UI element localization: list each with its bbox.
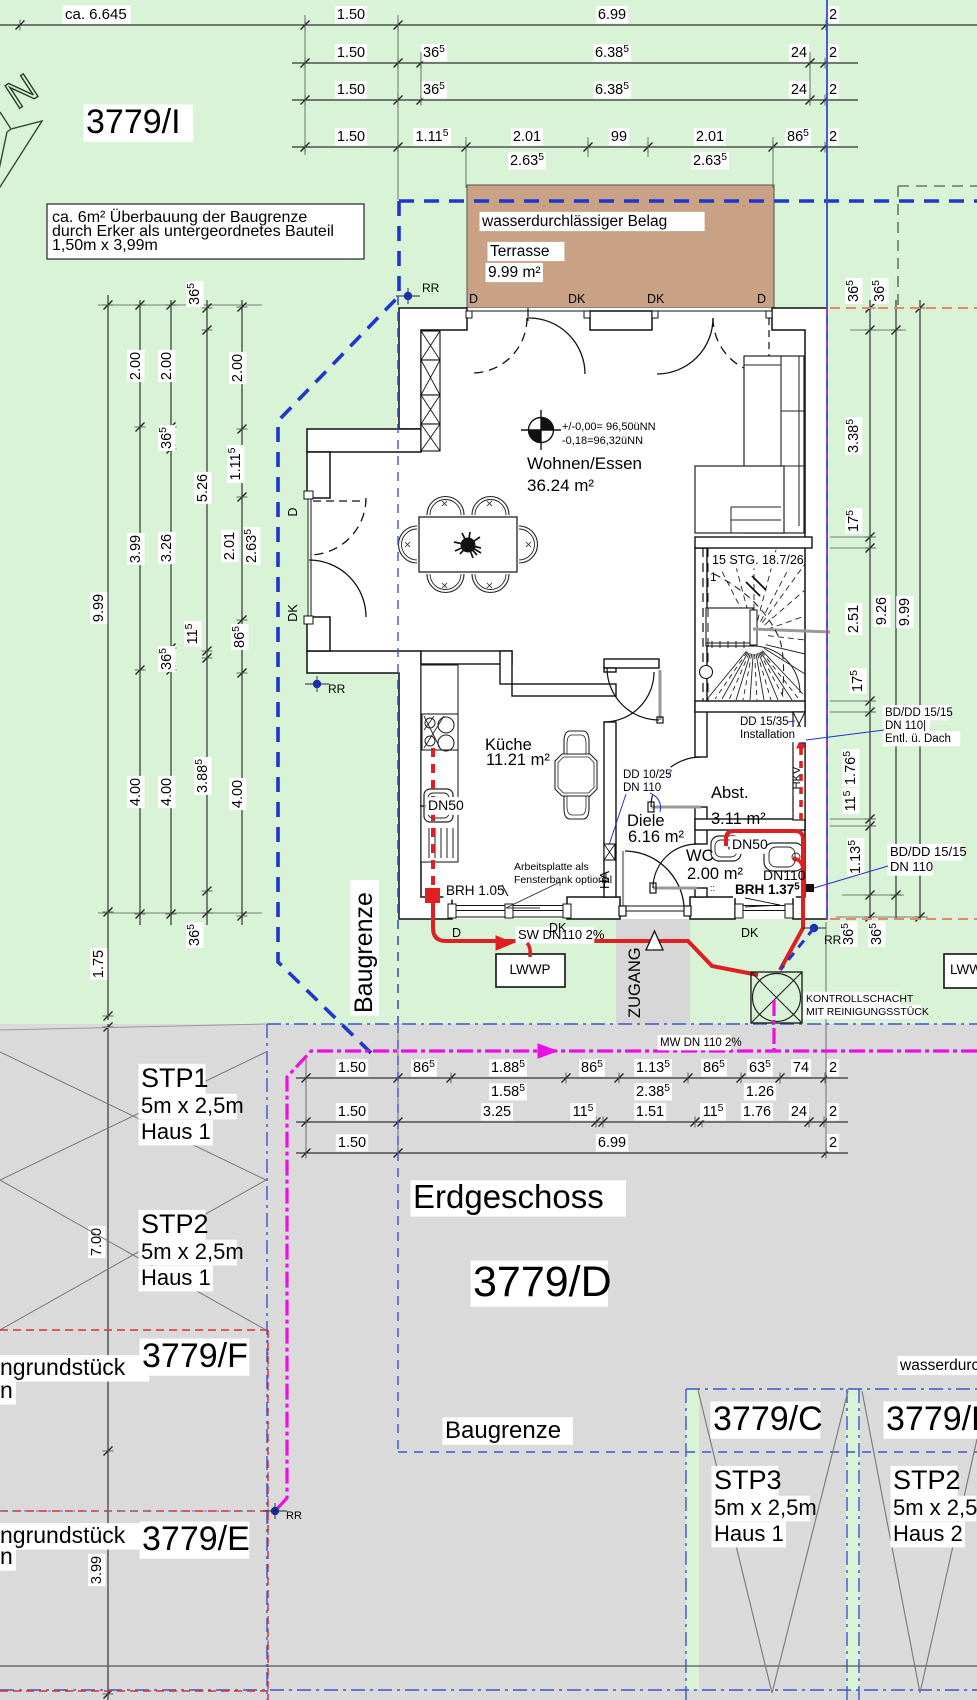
svg-text:Erdgeschoss: Erdgeschoss — [413, 1178, 604, 1215]
svg-text:1.50: 1.50 — [337, 7, 365, 23]
svg-text:5m x 2,5m: 5m x 2,5m — [141, 1093, 244, 1118]
svg-text:24: 24 — [791, 1104, 807, 1120]
svg-text:Baugrenze: Baugrenze — [445, 1417, 561, 1444]
svg-text:Baugrenze: Baugrenze — [350, 892, 378, 1013]
svg-text:DK: DK — [549, 921, 567, 935]
svg-text:1.50: 1.50 — [337, 129, 365, 145]
svg-text:3.25: 3.25 — [483, 1104, 511, 1120]
svg-text:Haus 1: Haus 1 — [714, 1521, 784, 1546]
svg-text:2: 2 — [829, 45, 837, 61]
svg-text:2: 2 — [829, 1104, 837, 1120]
svg-text:DN50: DN50 — [732, 836, 768, 852]
svg-text:-0,18=96,32üNN: -0,18=96,32üNN — [562, 435, 643, 447]
svg-text:WC: WC — [686, 847, 714, 865]
svg-text:1.50: 1.50 — [337, 45, 365, 61]
svg-text:5.26: 5.26 — [195, 474, 211, 502]
svg-text:Entl. ü. Dach: Entl. ü. Dach — [885, 733, 951, 745]
svg-text:RR: RR — [328, 682, 346, 696]
svg-text:::: :: — [710, 883, 715, 893]
svg-text:+/-0,00= 96,50üNN: +/-0,00= 96,50üNN — [562, 421, 656, 433]
svg-text:2.51: 2.51 — [846, 605, 862, 633]
svg-text:Haus 1: Haus 1 — [141, 1119, 211, 1144]
svg-text:ngrundstück: ngrundstück — [0, 1354, 126, 1380]
svg-text:9.99 m²: 9.99 m² — [488, 264, 541, 281]
svg-text:1,50m x 3,99m: 1,50m x 3,99m — [52, 237, 158, 254]
svg-text:LWWP: LWWP — [950, 962, 977, 977]
svg-text:RR: RR — [422, 281, 440, 295]
svg-text:7.00: 7.00 — [89, 1228, 105, 1256]
svg-text:6.99: 6.99 — [598, 7, 626, 23]
svg-text:4.00: 4.00 — [159, 778, 175, 806]
svg-text:DD 10/25: DD 10/25 — [623, 769, 672, 781]
svg-text:9.26: 9.26 — [874, 597, 890, 625]
svg-text:1.75: 1.75 — [91, 950, 107, 978]
svg-text:Haus 2: Haus 2 — [893, 1521, 963, 1546]
svg-text:ngrundstück: ngrundstück — [0, 1522, 126, 1548]
svg-text:2.00: 2.00 — [128, 352, 144, 380]
svg-text:Installation: Installation — [740, 729, 795, 741]
svg-text:9.99: 9.99 — [91, 594, 107, 622]
svg-text:BD/DD 15/15: BD/DD 15/15 — [885, 707, 953, 719]
svg-text:24: 24 — [791, 45, 807, 61]
svg-text:BRH 1.05: BRH 1.05 — [446, 883, 505, 898]
svg-text:STP1: STP1 — [141, 1063, 209, 1093]
svg-text:BD/DD 15/15: BD/DD 15/15 — [890, 844, 967, 859]
svg-text:D: D — [757, 292, 766, 306]
svg-text:D: D — [469, 292, 478, 306]
svg-text:1.50: 1.50 — [338, 1135, 366, 1151]
svg-text:4.00: 4.00 — [230, 780, 246, 808]
svg-text:DD 15/35: DD 15/35 — [740, 716, 789, 728]
svg-text:Arbeitsplatte als: Arbeitsplatte als — [514, 861, 589, 873]
svg-text:RR: RR — [824, 933, 842, 947]
svg-text:DN50: DN50 — [428, 797, 464, 813]
svg-text:3779/F: 3779/F — [142, 1337, 248, 1375]
svg-text:ca. 6.645: ca. 6.645 — [65, 6, 127, 23]
svg-text:1.50: 1.50 — [338, 1104, 366, 1120]
svg-text:2: 2 — [829, 129, 837, 145]
svg-text:DN 110|: DN 110| — [885, 720, 926, 732]
svg-text:9.99: 9.99 — [897, 598, 913, 626]
svg-text:D: D — [452, 926, 461, 940]
svg-text:DK: DK — [286, 604, 300, 622]
svg-text:3779/D: 3779/D — [473, 1258, 612, 1306]
svg-text:3779/C: 3779/C — [713, 1400, 823, 1438]
svg-text:wasserdurchläss: wasserdurchläss — [899, 1357, 977, 1374]
svg-text:2.01: 2.01 — [222, 532, 238, 560]
svg-text:STP2: STP2 — [141, 1209, 209, 1239]
svg-text:4.00: 4.00 — [128, 778, 144, 806]
svg-text:3.26: 3.26 — [159, 534, 175, 562]
svg-text:2.00 m²: 2.00 m² — [687, 865, 743, 883]
svg-text:5m x 2,5m: 5m x 2,5m — [141, 1239, 244, 1264]
svg-text:1.76: 1.76 — [743, 1104, 771, 1120]
svg-text:2: 2 — [829, 1135, 837, 1151]
svg-text:6.16 m²: 6.16 m² — [628, 828, 684, 846]
svg-text:1.50: 1.50 — [338, 1060, 366, 1076]
svg-text:STP3: STP3 — [714, 1465, 782, 1495]
svg-text:DN 110: DN 110 — [890, 859, 933, 874]
svg-text:11.21 m²: 11.21 m² — [486, 751, 550, 769]
svg-text:n: n — [0, 1377, 13, 1403]
svg-text:LWWP: LWWP — [510, 962, 551, 977]
svg-text:3779/I: 3779/I — [86, 103, 181, 141]
svg-text:15 STG. 18.7/26: 15 STG. 18.7/26 — [712, 553, 804, 567]
svg-text:2.01: 2.01 — [696, 129, 724, 145]
svg-text:Abst.: Abst. — [711, 784, 749, 802]
svg-text:DN 110: DN 110 — [623, 782, 661, 794]
svg-text:RR: RR — [286, 1510, 302, 1522]
svg-text:2: 2 — [829, 7, 837, 23]
svg-text:1: 1 — [710, 570, 717, 584]
svg-text:2.00: 2.00 — [159, 352, 175, 380]
svg-text:1.26: 1.26 — [746, 1084, 774, 1100]
svg-text:1.50: 1.50 — [337, 82, 365, 98]
svg-text:24: 24 — [791, 82, 807, 98]
svg-text:BRH 1.375: BRH 1.375 — [735, 882, 800, 898]
svg-text:KONTROLLSCHACHT: KONTROLLSCHACHT — [806, 993, 914, 1005]
svg-text:3.99: 3.99 — [89, 1556, 105, 1584]
svg-text:99: 99 — [611, 129, 627, 145]
svg-text:DK: DK — [741, 926, 759, 940]
svg-text:6.99: 6.99 — [598, 1135, 626, 1151]
svg-text:DK: DK — [647, 292, 665, 306]
svg-text:DK: DK — [568, 292, 586, 306]
svg-text:STP2: STP2 — [893, 1465, 961, 1495]
svg-text:5m x 2,5m: 5m x 2,5m — [714, 1495, 817, 1520]
svg-text:3.11 m²: 3.11 m² — [711, 810, 766, 828]
svg-text:5m x 2,5: 5m x 2,5 — [893, 1495, 977, 1520]
svg-text:2: 2 — [829, 82, 837, 98]
svg-text:3779/B: 3779/B — [886, 1400, 977, 1438]
svg-text:74: 74 — [793, 1060, 809, 1076]
svg-text:ZUGANG: ZUGANG — [626, 947, 644, 1018]
svg-text:Wohnen/Essen: Wohnen/Essen — [527, 454, 642, 473]
svg-text:Terrasse: Terrasse — [490, 243, 549, 260]
svg-text:2.01: 2.01 — [513, 129, 541, 145]
svg-text:n: n — [0, 1543, 13, 1569]
svg-text:Haus 1: Haus 1 — [141, 1265, 211, 1290]
svg-text:Fensterbank optional: Fensterbank optional — [514, 874, 612, 886]
svg-text:1.51: 1.51 — [636, 1104, 664, 1120]
svg-text:MIT REINIGUNGSSTÜCK: MIT REINIGUNGSSTÜCK — [806, 1006, 929, 1018]
svg-text:36.24 m²: 36.24 m² — [527, 476, 594, 495]
svg-text:wasserdurchlässiger Belag: wasserdurchlässiger Belag — [481, 213, 667, 230]
svg-text:MW DN 110 2%: MW DN 110 2% — [660, 1037, 742, 1049]
svg-text:2: 2 — [829, 1060, 837, 1076]
svg-text:3.99: 3.99 — [128, 535, 144, 563]
svg-text:3779/E: 3779/E — [142, 1520, 250, 1558]
svg-text:D: D — [286, 507, 300, 516]
svg-text:2.00: 2.00 — [230, 354, 246, 382]
